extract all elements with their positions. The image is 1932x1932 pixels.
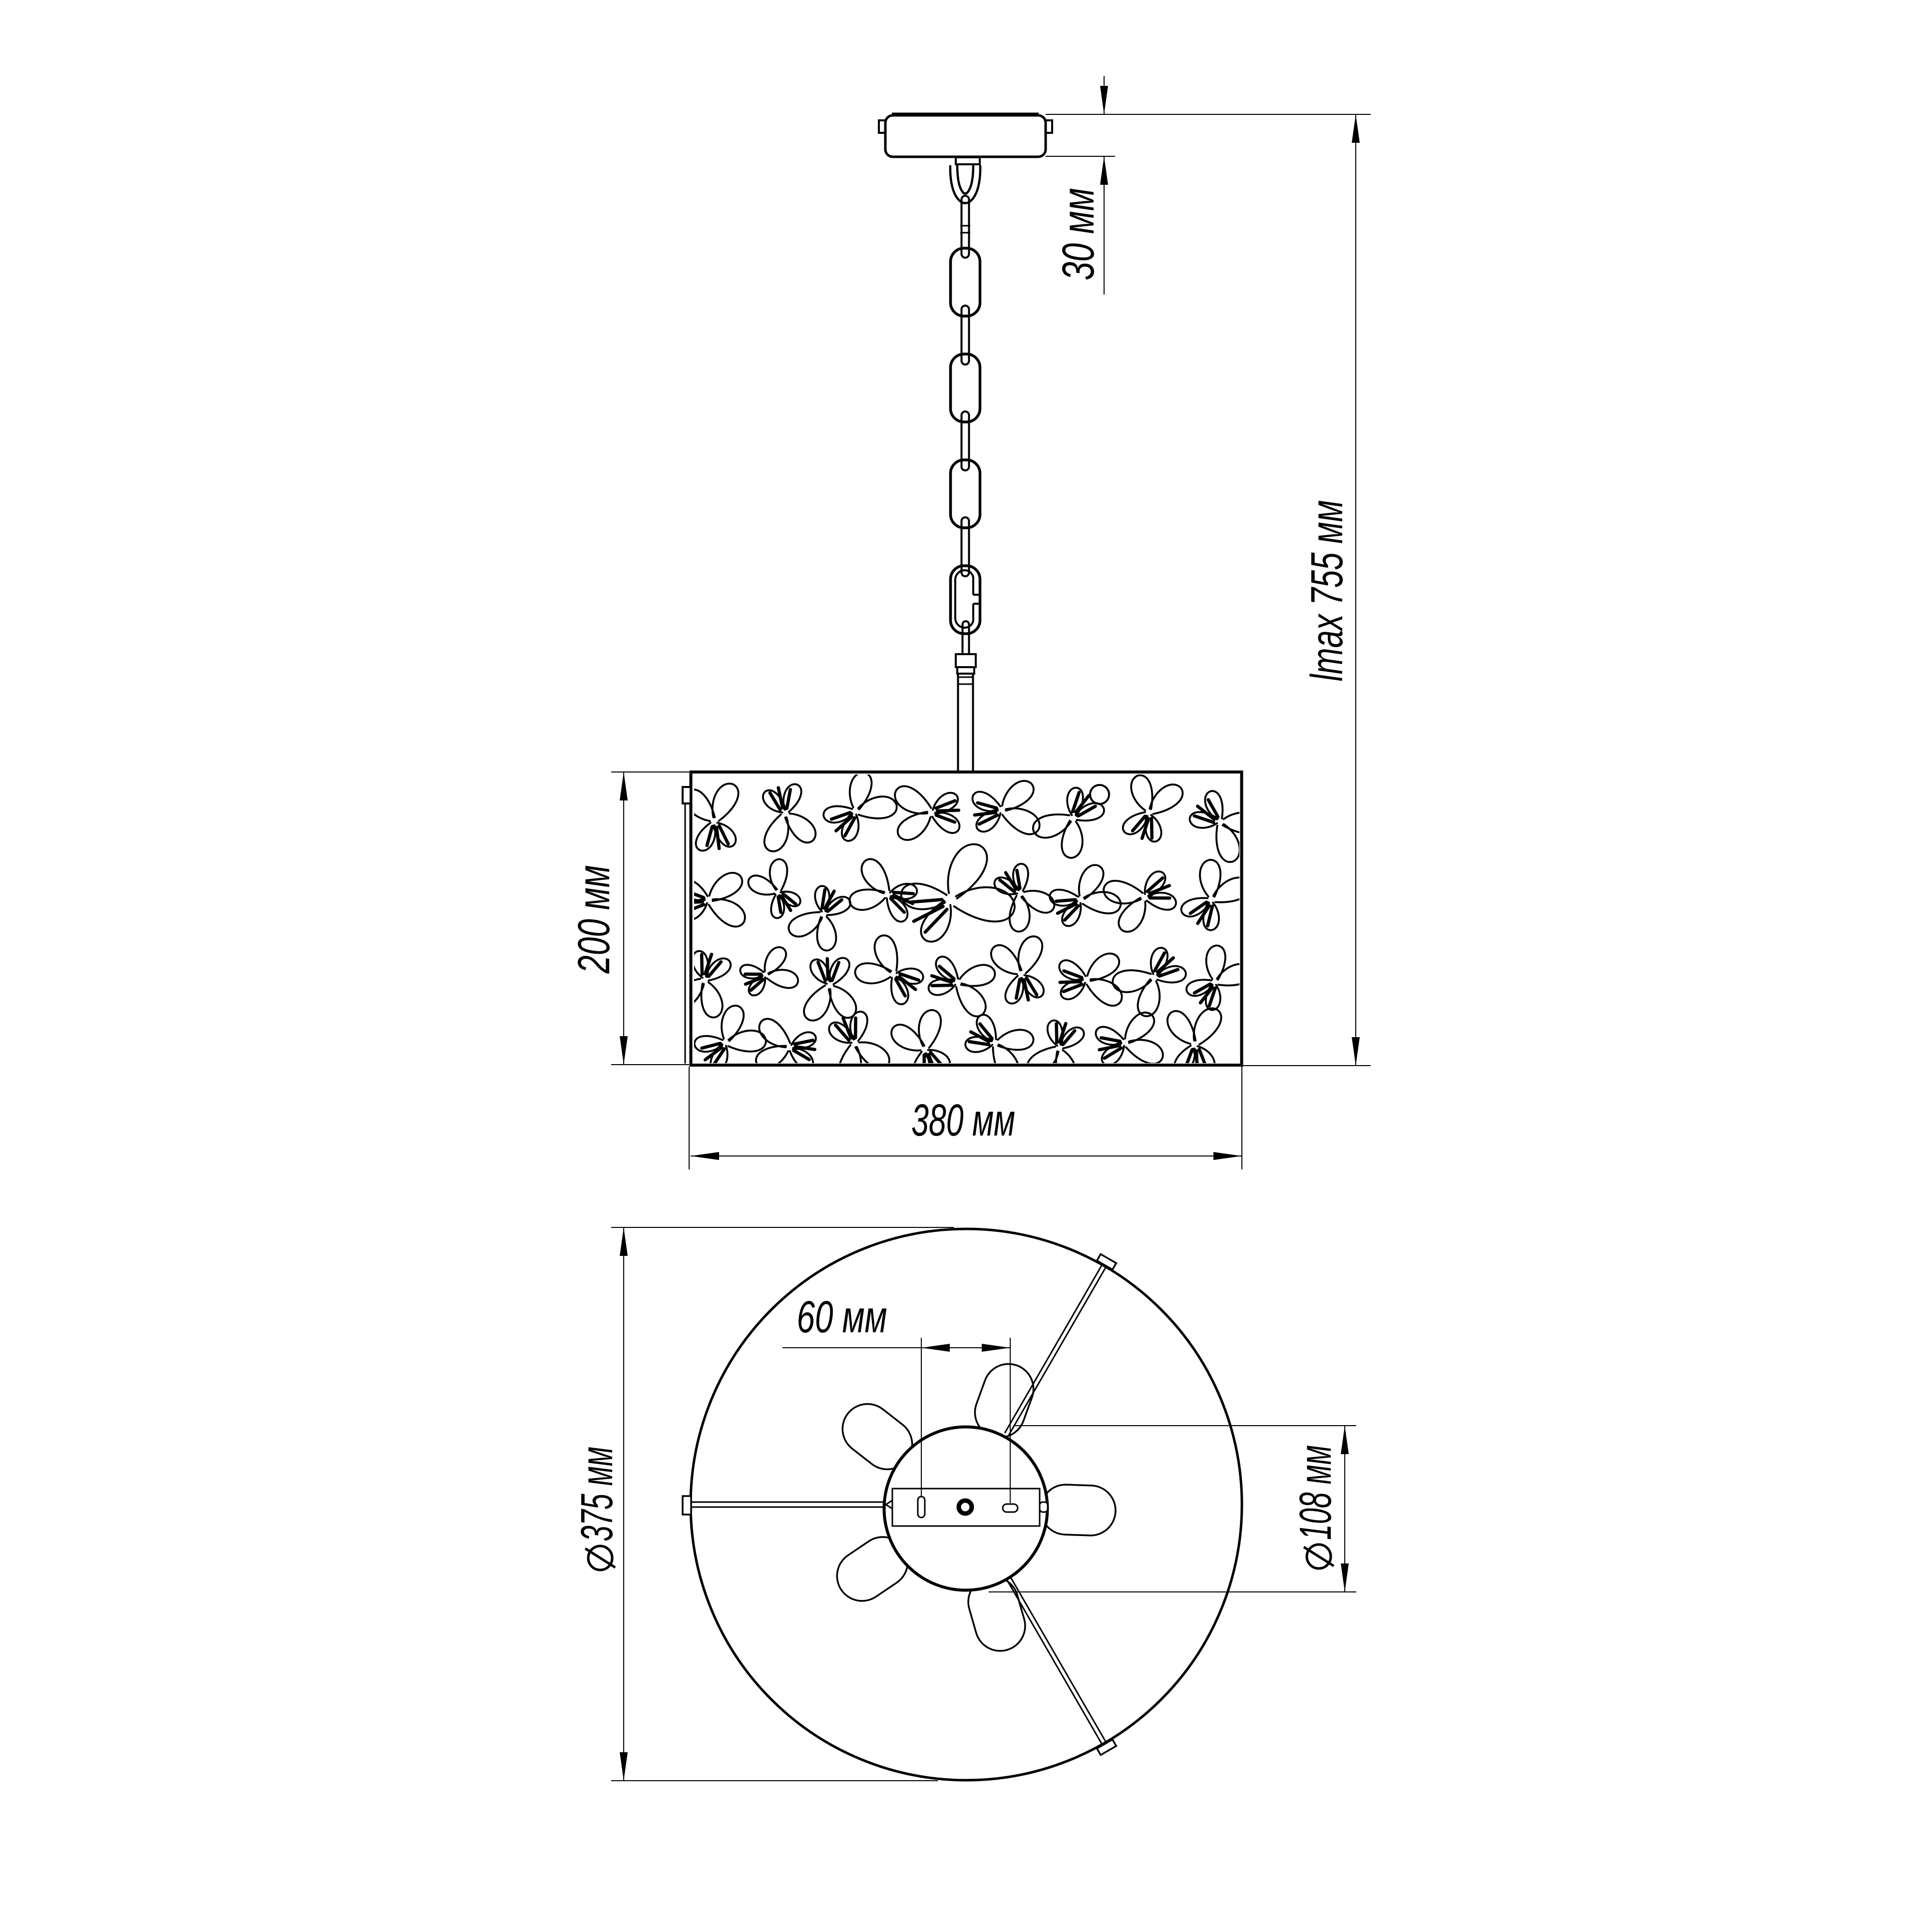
svg-text:108 мм: 108 мм xyxy=(1291,1445,1341,1540)
svg-text:375 мм: 375 мм xyxy=(572,1447,622,1542)
svg-text:380 мм: 380 мм xyxy=(911,1096,1015,1146)
svg-text:60 мм: 60 мм xyxy=(797,1292,887,1342)
svg-text:lmax 755 мм: lmax 755 мм xyxy=(1302,500,1352,682)
svg-text:200 мм: 200 мм xyxy=(569,865,619,974)
svg-text:30 мм: 30 мм xyxy=(1054,188,1104,281)
